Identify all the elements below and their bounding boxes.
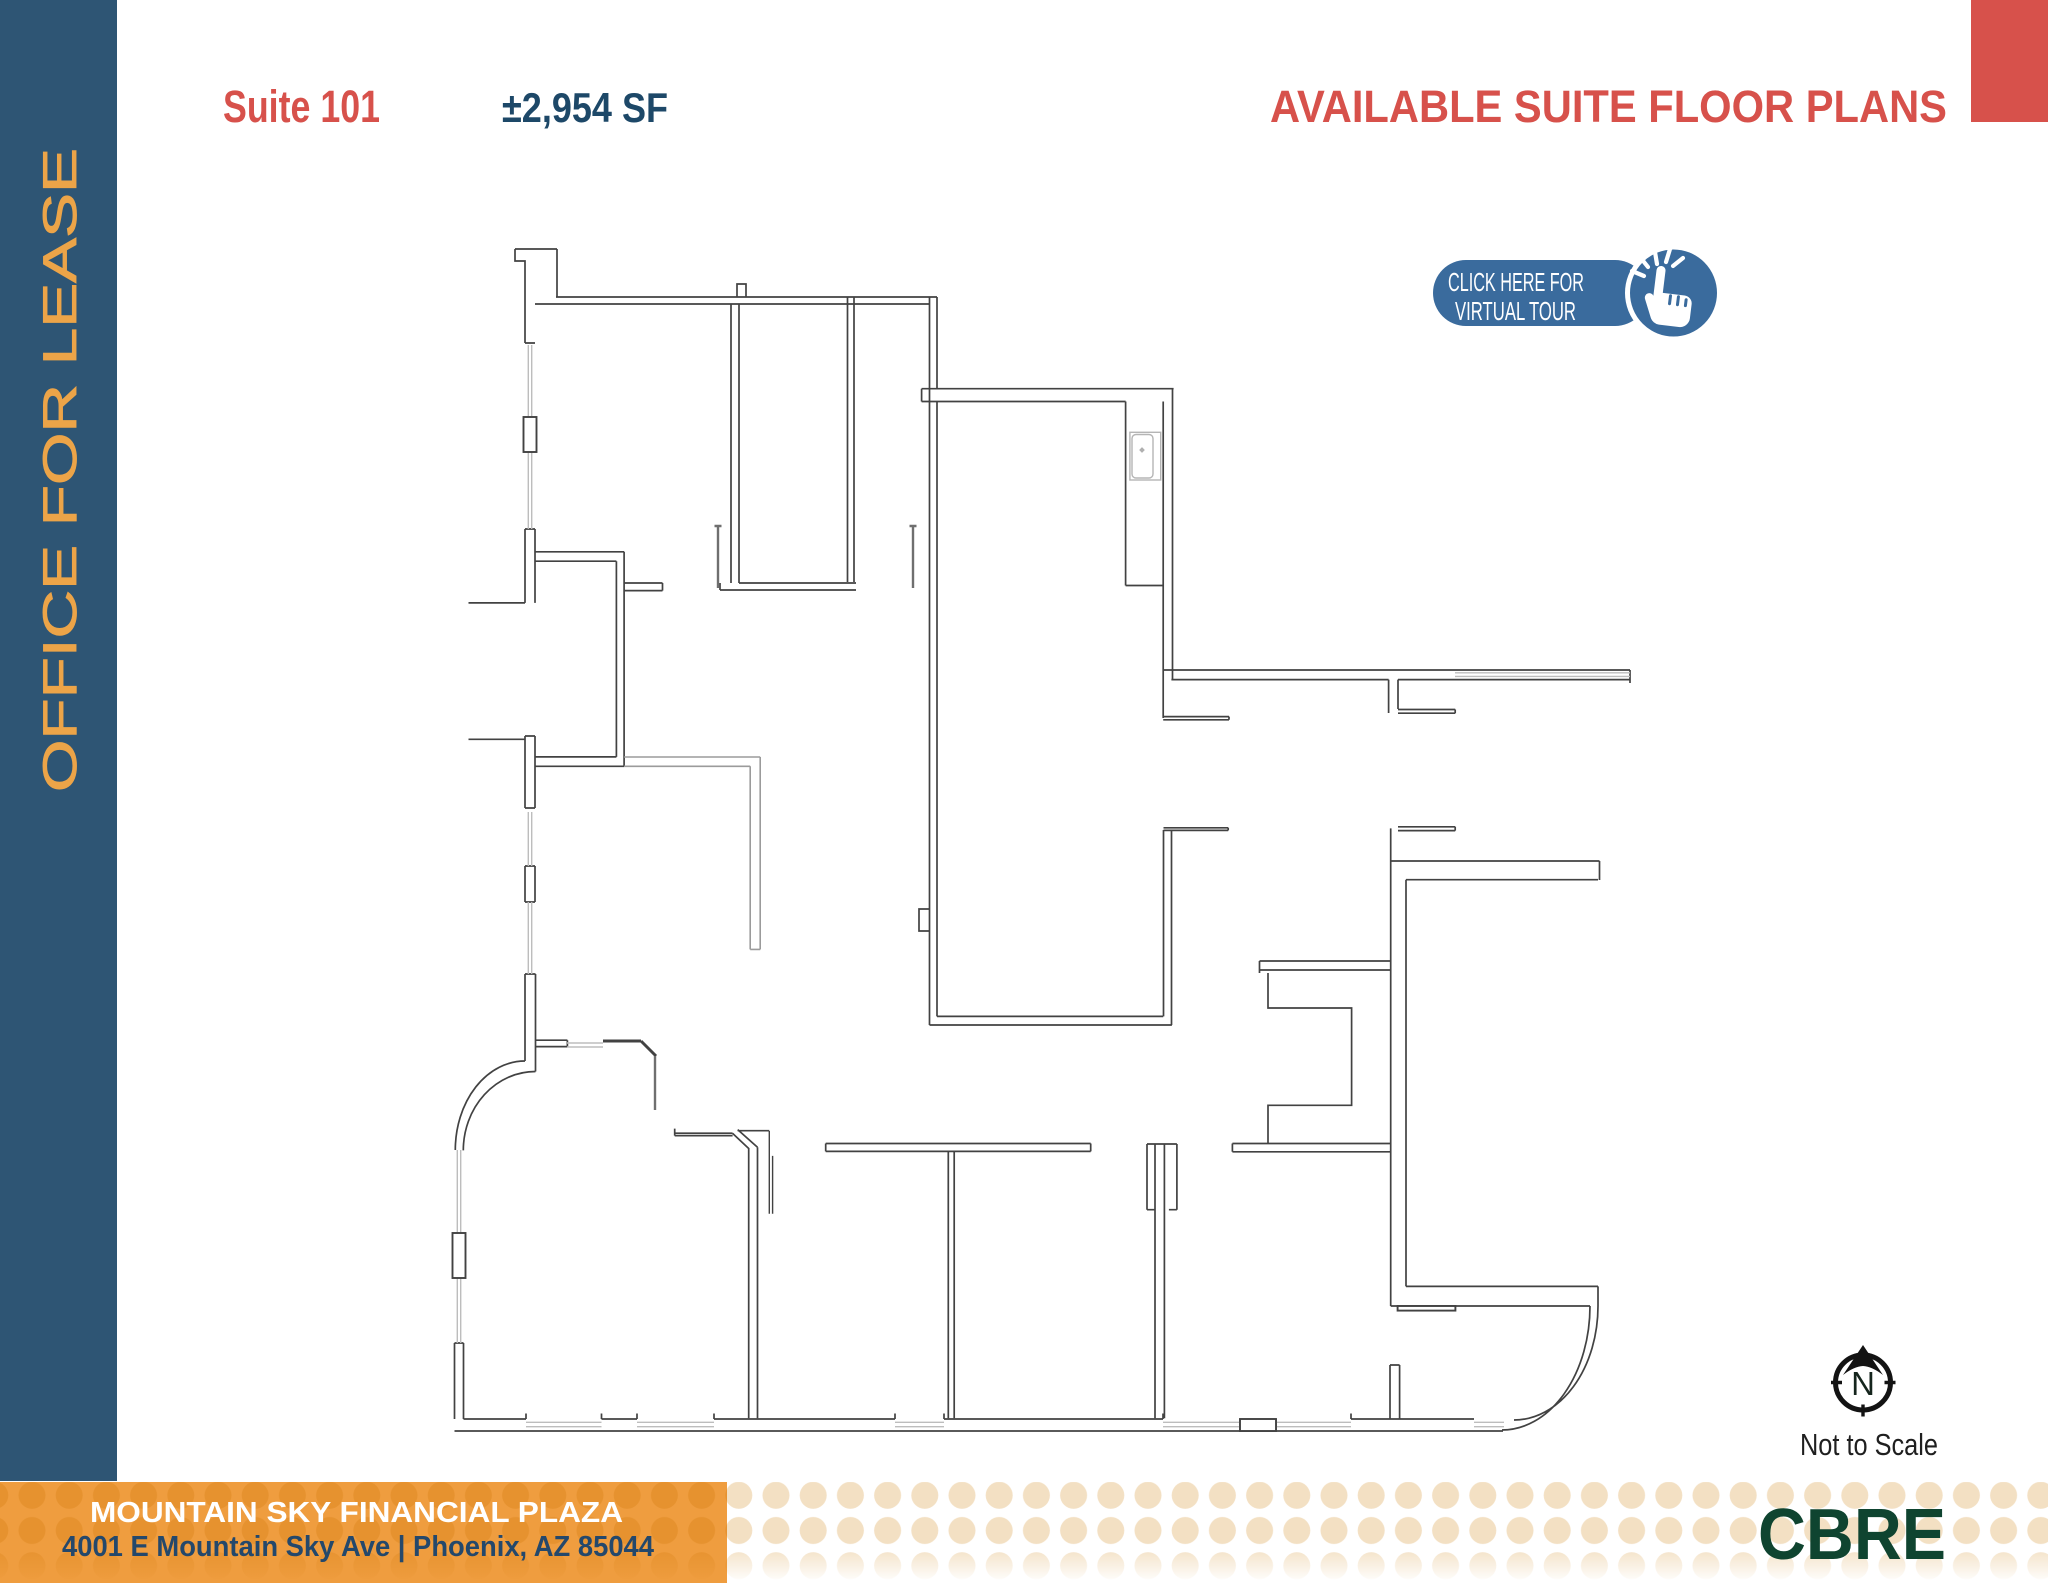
svg-text:Not to Scale: Not to Scale bbox=[1800, 1427, 1938, 1462]
svg-text:MOUNTAIN SKY FINANCIAL PLAZA: MOUNTAIN SKY FINANCIAL PLAZA bbox=[90, 1497, 623, 1529]
svg-text:±2,954 SF: ±2,954 SF bbox=[502, 84, 668, 131]
svg-text:CLICK HERE FOR: CLICK HERE FOR bbox=[1448, 267, 1584, 297]
svg-text:Suite 101: Suite 101 bbox=[223, 81, 380, 132]
svg-text:CBRE: CBRE bbox=[1758, 1495, 1946, 1575]
svg-text:AVAILABLE SUITE FLOOR PLANS: AVAILABLE SUITE FLOOR PLANS bbox=[1270, 81, 1947, 132]
svg-text:VIRTUAL TOUR: VIRTUAL TOUR bbox=[1455, 296, 1576, 326]
svg-text:OFFICE FOR LEASE: OFFICE FOR LEASE bbox=[33, 148, 86, 792]
svg-text:N: N bbox=[1851, 1365, 1875, 1402]
svg-text:4001 E Mountain Sky Ave | Phoe: 4001 E Mountain Sky Ave | Phoenix, AZ 85… bbox=[62, 1531, 654, 1563]
